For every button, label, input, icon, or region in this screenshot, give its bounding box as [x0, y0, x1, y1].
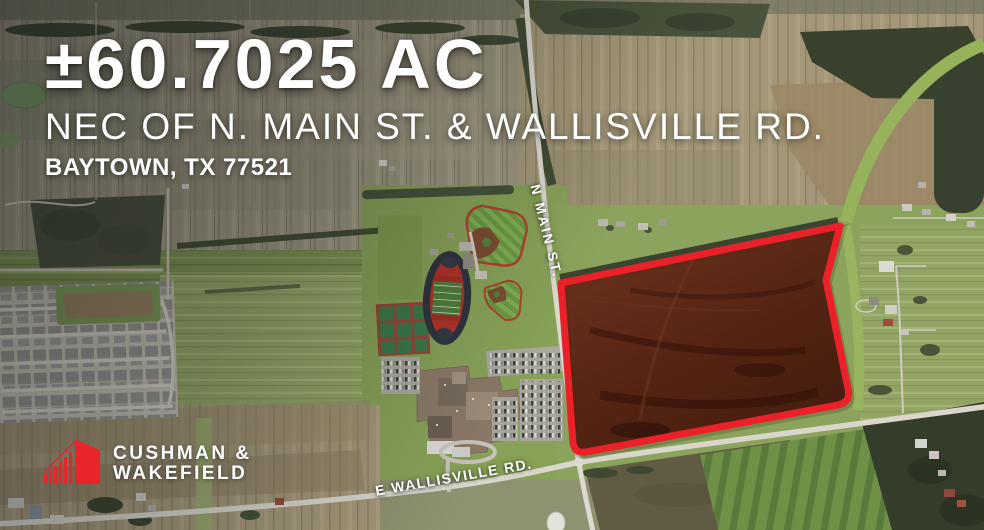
cushman-wakefield-logo-mark [44, 436, 100, 486]
location-subheadline: NEC OF N. MAIN ST. & WALLISVILLE RD. [45, 107, 825, 148]
residential-subdivision [0, 281, 178, 423]
headline-block: ±60.7025 AC NEC OF N. MAIN ST. & WALLISV… [45, 28, 825, 182]
flyer-root: ±60.7025 AC NEC OF N. MAIN ST. & WALLISV… [0, 0, 984, 530]
wordmark-line1: CUSHMAN & [113, 444, 252, 464]
water-tower [547, 512, 565, 530]
wordmark-line2: WAKEFIELD [113, 464, 252, 484]
acreage-headline: ±60.7025 AC [45, 28, 825, 102]
tennis-courts [376, 302, 431, 357]
cushman-wakefield-logo: CUSHMAN & WAKEFIELD [44, 436, 252, 486]
cushman-wakefield-wordmark: CUSHMAN & WAKEFIELD [113, 436, 252, 484]
city-state-zip: BAYTOWN, TX 77521 [45, 154, 825, 182]
